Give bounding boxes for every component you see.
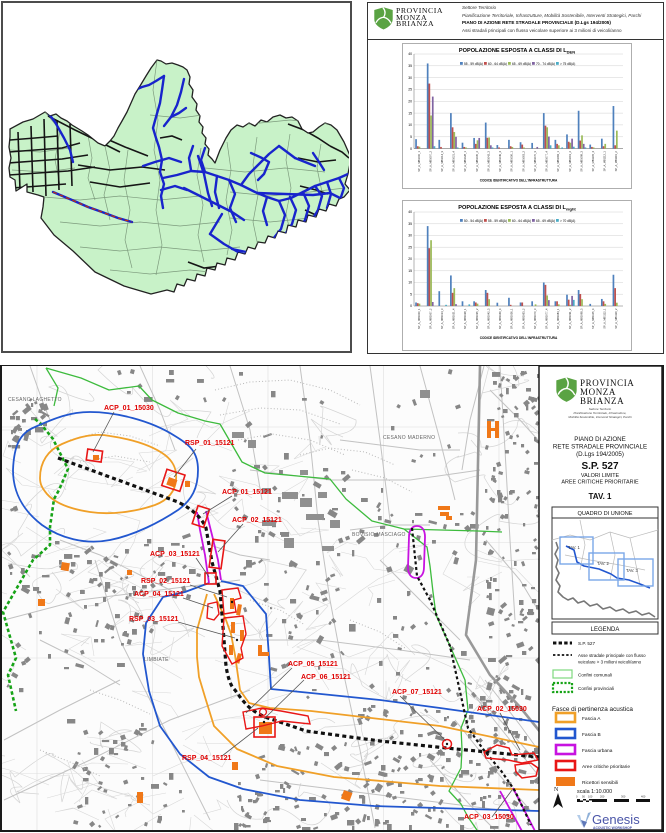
- svg-text:SP_A_MB1049_4: SP_A_MB1049_4: [498, 151, 502, 172]
- svg-text:Fascia A: Fascia A: [582, 716, 601, 722]
- svg-text:SP_A_MB1098_3: SP_A_MB1098_3: [579, 308, 583, 329]
- svg-text:ACP_02_15030: ACP_02_15030: [477, 706, 527, 713]
- svg-text:SP_A_MB1119_2: SP_A_MB1119_2: [614, 308, 618, 329]
- svg-text:30: 30: [408, 76, 412, 80]
- svg-text:15: 15: [408, 111, 412, 115]
- svg-text:ACP_01_15121: ACP_01_15121: [222, 489, 272, 496]
- svg-text:5: 5: [410, 292, 412, 296]
- svg-text:35: 35: [408, 64, 412, 68]
- svg-text:Fascia B: Fascia B: [582, 732, 601, 738]
- svg-text:RSP_04_15121: RSP_04_15121: [182, 755, 232, 762]
- svg-text:LEGENDA: LEGENDA: [591, 627, 620, 633]
- svg-text:SP_A_MB1077_4: SP_A_MB1077_4: [545, 151, 549, 172]
- svg-text:400: 400: [641, 795, 646, 799]
- svg-text:VALORI LIMITE: VALORI LIMITE: [581, 473, 620, 479]
- svg-text:CESANO LAGHETTO: CESANO LAGHETTO: [8, 397, 62, 403]
- svg-text:50 - 54 dB(A): 50 - 54 dB(A): [464, 219, 483, 223]
- svg-text:POPOLAZIONE ESPOSTA A CLASSI D: POPOLAZIONE ESPOSTA A CLASSI DI Lnight: [458, 205, 576, 212]
- svg-text:0: 0: [410, 147, 412, 151]
- svg-text:SP_A_MB1105_4: SP_A_MB1105_4: [591, 308, 595, 329]
- svg-text:SP_A_MB1042_3: SP_A_MB1042_3: [487, 151, 491, 172]
- svg-text:SP_A_MB1091_2: SP_A_MB1091_2: [568, 151, 572, 172]
- svg-text:SP_A_MB1007_2: SP_A_MB1007_2: [428, 308, 432, 329]
- svg-text:SP_A_MB1000_1: SP_A_MB1000_1: [417, 151, 421, 172]
- svg-text:SP_A_MB1007_2: SP_A_MB1007_2: [428, 151, 432, 172]
- svg-text:CODICE IDENTIFICATIVO DELL'INF: CODICE IDENTIFICATIVO DELL'INFRASTRUTTUR…: [480, 336, 558, 340]
- svg-text:55 - 59 dB(A): 55 - 59 dB(A): [464, 62, 483, 66]
- svg-text:PIANO DI AZIONE: PIANO DI AZIONE: [574, 436, 626, 443]
- svg-text:10: 10: [408, 123, 412, 127]
- svg-text:SP_A_MB1014_3: SP_A_MB1014_3: [440, 308, 444, 329]
- svg-text:SP_A_MB1119_2: SP_A_MB1119_2: [614, 151, 618, 172]
- svg-text:SP_A_MB1105_4: SP_A_MB1105_4: [591, 151, 595, 172]
- svg-text:40: 40: [408, 210, 412, 214]
- svg-text:ACP_03_15121: ACP_03_15121: [150, 551, 200, 558]
- svg-text:Asse stradale principale con f: Asse stradale principale con flusso: [578, 653, 646, 658]
- svg-text:scala 1:10.000: scala 1:10.000: [577, 789, 612, 795]
- svg-text:Confini provinciali: Confini provinciali: [578, 686, 614, 691]
- svg-text:40: 40: [408, 52, 412, 56]
- svg-text:BOVISIO MASCIAGO: BOVISIO MASCIAGO: [352, 532, 406, 538]
- svg-text:60 - 64 dB(A): 60 - 64 dB(A): [512, 219, 531, 223]
- svg-text:35: 35: [408, 222, 412, 226]
- svg-text:veicolare > 3 milioni veicoli/: veicolare > 3 milioni veicoli/anno: [578, 660, 642, 665]
- svg-text:70 - 74 dB(A): 70 - 74 dB(A): [536, 62, 555, 66]
- svg-text:10: 10: [408, 281, 412, 285]
- svg-text:(D.Lgs 194/2005): (D.Lgs 194/2005): [576, 451, 624, 458]
- svg-text:ACP_04_15121: ACP_04_15121: [134, 591, 184, 598]
- svg-text:SP_A_MB1028_1: SP_A_MB1028_1: [463, 151, 467, 172]
- svg-text:S.P. 527: S.P. 527: [581, 461, 619, 472]
- svg-text:65 - 69 dB(A): 65 - 69 dB(A): [536, 219, 555, 223]
- svg-text:Confini comunali: Confini comunali: [578, 673, 612, 678]
- svg-text:0: 0: [410, 304, 412, 308]
- svg-text:25: 25: [408, 245, 412, 249]
- svg-text:30: 30: [408, 234, 412, 238]
- svg-text:ACP_05_15121: ACP_05_15121: [288, 661, 338, 668]
- svg-text:Mobilità Sostenibile, Interven: Mobilità Sostenibile, Interventi Strateg…: [568, 415, 632, 419]
- svg-text:RSP_02_15121: RSP_02_15121: [141, 578, 191, 585]
- svg-text:200: 200: [600, 795, 605, 799]
- svg-text:ACP_02_15121: ACP_02_15121: [232, 517, 282, 524]
- svg-text:SP_A_MB1091_2: SP_A_MB1091_2: [568, 308, 572, 329]
- svg-text:POPOLAZIONE ESPOSTA A CLASSI D: POPOLAZIONE ESPOSTA A CLASSI DI LDEN: [459, 48, 575, 55]
- svg-text:60 - 64 dB(A): 60 - 64 dB(A): [488, 62, 507, 66]
- svg-text:ACP_06_15121: ACP_06_15121: [301, 674, 351, 681]
- svg-text:CESANO MADERNO: CESANO MADERNO: [383, 435, 435, 441]
- svg-text:RETE STRADALE PROVINCIALE: RETE STRADALE PROVINCIALE: [553, 444, 647, 451]
- svg-text:RSP_03_15121: RSP_03_15121: [129, 616, 179, 623]
- svg-text:SP_A_MB1028_1: SP_A_MB1028_1: [463, 308, 467, 329]
- svg-text:ACP_01_15030: ACP_01_15030: [104, 405, 154, 412]
- svg-text:20: 20: [408, 100, 412, 104]
- svg-text:SP_A_MB1084_1: SP_A_MB1084_1: [556, 151, 560, 172]
- svg-text:55 - 59 dB(A): 55 - 59 dB(A): [488, 219, 507, 223]
- svg-text:SP_A_MB1084_1: SP_A_MB1084_1: [556, 308, 560, 329]
- svg-text:SP_A_MB1070_3: SP_A_MB1070_3: [533, 308, 537, 329]
- svg-text:ACP_03_15030: ACP_03_15030: [464, 814, 514, 821]
- svg-text:SP_A_MB1042_3: SP_A_MB1042_3: [487, 308, 491, 329]
- svg-text:LIMBIATE: LIMBIATE: [144, 657, 169, 663]
- svg-text:25: 25: [408, 88, 412, 92]
- svg-text:AREE CRITICHE PRIORITARIE: AREE CRITICHE PRIORITARIE: [561, 480, 639, 486]
- svg-text:SP_A_MB1063_2: SP_A_MB1063_2: [521, 308, 525, 329]
- svg-text:N: N: [554, 787, 559, 793]
- svg-text:> 75 dB(A): > 75 dB(A): [560, 62, 575, 66]
- svg-text:SP_A_MB1049_4: SP_A_MB1049_4: [498, 308, 502, 329]
- svg-text:> 70 dB(A): > 70 dB(A): [560, 219, 575, 223]
- svg-text:65 - 69 dB(A): 65 - 69 dB(A): [512, 62, 531, 66]
- svg-text:SP_A_MB1112_1: SP_A_MB1112_1: [603, 308, 607, 329]
- svg-text:QUADRO DI UNIONE: QUADRO DI UNIONE: [577, 511, 632, 517]
- svg-text:SP_A_MB1112_1: SP_A_MB1112_1: [603, 151, 607, 172]
- svg-text:SP_A_MB1035_2: SP_A_MB1035_2: [475, 308, 479, 329]
- svg-text:Aree critiche prioritarie: Aree critiche prioritarie: [582, 764, 630, 770]
- svg-text:SP_A_MB1056_1: SP_A_MB1056_1: [510, 308, 514, 329]
- svg-text:300: 300: [621, 795, 626, 799]
- svg-text:20: 20: [408, 257, 412, 261]
- svg-text:BRIANZA: BRIANZA: [580, 396, 624, 406]
- svg-text:TAV. 1: TAV. 1: [568, 545, 580, 550]
- svg-text:TAV. 1: TAV. 1: [589, 492, 613, 501]
- svg-text:Ricettori sensibili: Ricettori sensibili: [582, 780, 618, 786]
- svg-text:15: 15: [408, 269, 412, 273]
- svg-text:CODICE IDENTIFICATIVO DELL'INF: CODICE IDENTIFICATIVO DELL'INFRASTRUTTUR…: [480, 179, 558, 183]
- svg-text:SP_A_MB1077_4: SP_A_MB1077_4: [545, 308, 549, 329]
- svg-text:SP_A_MB1000_1: SP_A_MB1000_1: [417, 308, 421, 329]
- svg-text:SP_A_MB1056_1: SP_A_MB1056_1: [510, 151, 514, 172]
- svg-text:RSP_01_15121: RSP_01_15121: [185, 440, 235, 447]
- svg-text:ACP_07_15121: ACP_07_15121: [392, 689, 442, 696]
- svg-text:SP_A_MB1021_4: SP_A_MB1021_4: [452, 308, 456, 329]
- svg-text:SP_A_MB1021_4: SP_A_MB1021_4: [452, 151, 456, 172]
- svg-text:SP_A_MB1014_3: SP_A_MB1014_3: [440, 151, 444, 172]
- svg-text:SP_A_MB1063_2: SP_A_MB1063_2: [521, 151, 525, 172]
- svg-text:ACOUSTIC WORKSHOP: ACOUSTIC WORKSHOP: [593, 826, 633, 830]
- svg-text:5: 5: [410, 135, 412, 139]
- svg-text:SP_A_MB1070_3: SP_A_MB1070_3: [533, 151, 537, 172]
- svg-text:TAV. 3: TAV. 3: [626, 568, 638, 573]
- svg-text:100: 100: [588, 795, 593, 799]
- svg-text:S.P. 527: S.P. 527: [578, 641, 595, 646]
- svg-text:TAV. 2: TAV. 2: [597, 561, 609, 566]
- svg-text:Fascia urbana: Fascia urbana: [582, 748, 613, 754]
- svg-text:SP_A_MB1035_2: SP_A_MB1035_2: [475, 151, 479, 172]
- svg-text:Genesis: Genesis: [592, 812, 640, 827]
- svg-text:SP_A_MB1098_3: SP_A_MB1098_3: [579, 151, 583, 172]
